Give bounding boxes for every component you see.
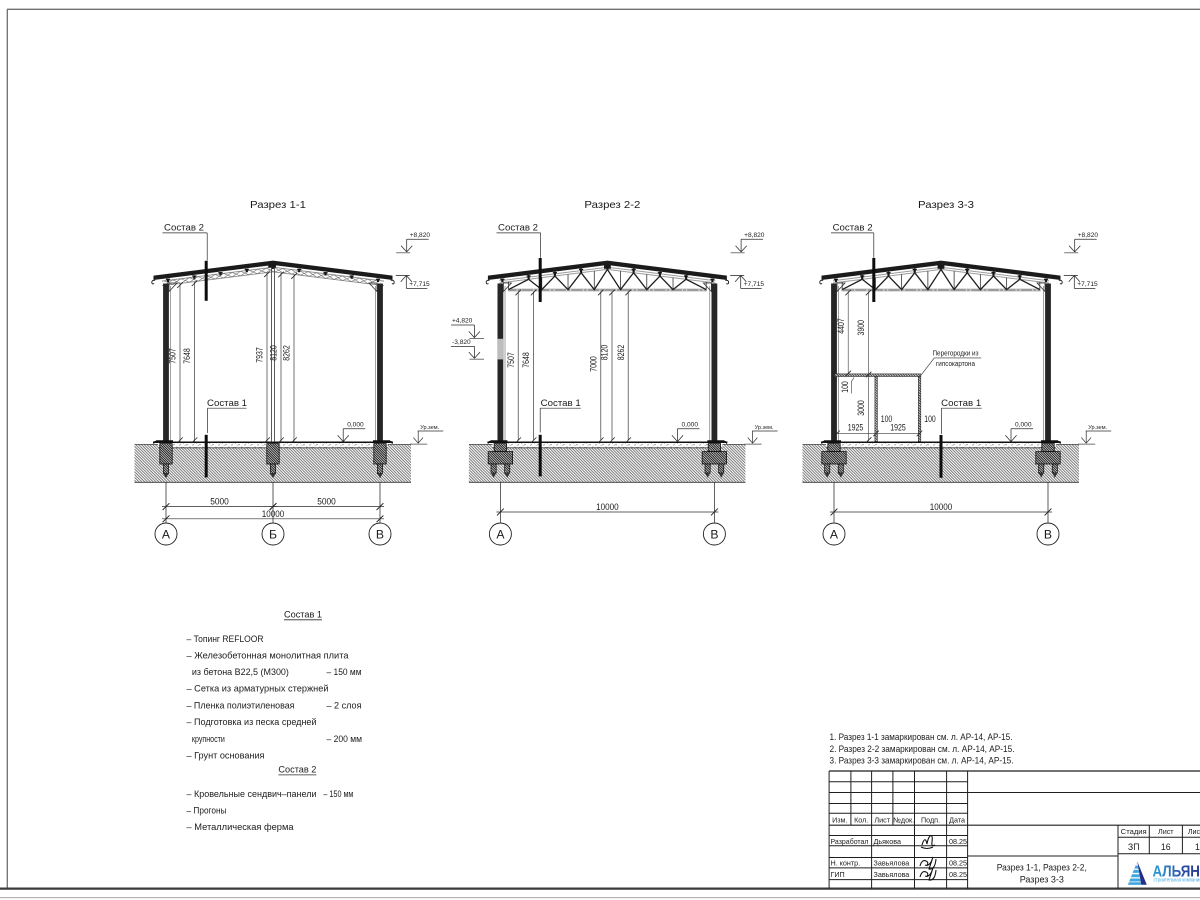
svg-text:– Сетка из арматурных стержней: – Сетка из арматурных стержней — [187, 684, 329, 695]
svg-text:Состав 1: Состав 1 — [941, 398, 981, 408]
svg-text:08.25: 08.25 — [949, 837, 967, 846]
svg-text:5000: 5000 — [210, 497, 229, 507]
svg-text:А: А — [162, 527, 171, 541]
svg-text:Разрез 2-2: Разрез 2-2 — [584, 200, 640, 211]
svg-text:Завьялова: Завьялова — [874, 859, 910, 868]
svg-text:1: 1 — [1195, 842, 1200, 852]
svg-text:16: 16 — [1161, 842, 1171, 852]
svg-text:10000: 10000 — [930, 502, 953, 512]
svg-text:– Кровельные сендвич–панели: – Кровельные сендвич–панели — [187, 789, 317, 800]
svg-text:+4,820: +4,820 — [452, 318, 473, 325]
svg-text:– 150 мм: – 150 мм — [323, 789, 353, 800]
svg-text:из бетона В22,5 (М300): из бетона В22,5 (М300) — [192, 667, 289, 678]
svg-text:8120: 8120 — [269, 345, 279, 361]
svg-text:Ур.зем.: Ур.зем. — [755, 425, 774, 431]
svg-text:Состав 1: Состав 1 — [207, 398, 247, 408]
svg-text:+7,715: +7,715 — [409, 281, 430, 288]
svg-text:100: 100 — [881, 414, 893, 424]
svg-text:Состав 2: Состав 2 — [833, 223, 873, 233]
svg-text:8262: 8262 — [282, 345, 292, 361]
svg-text:– 150 мм: – 150 мм — [327, 667, 362, 678]
svg-text:7648: 7648 — [521, 352, 531, 368]
svg-text:Стадия: Стадия — [1121, 827, 1147, 836]
svg-text:Подп.: Подп. — [921, 815, 940, 824]
svg-text:3000: 3000 — [856, 400, 866, 416]
svg-text:100: 100 — [840, 381, 850, 393]
svg-text:Ур.зем.: Ур.зем. — [1088, 425, 1107, 431]
svg-text:Состав 1: Состав 1 — [541, 398, 581, 408]
svg-text:Разрез 3-3: Разрез 3-3 — [1020, 874, 1064, 884]
svg-text:Состав 2: Состав 2 — [164, 223, 204, 233]
svg-text:В: В — [710, 527, 718, 541]
svg-text:3900: 3900 — [856, 320, 866, 336]
svg-text:Б: Б — [269, 527, 277, 541]
svg-text:Лист: Лист — [874, 815, 890, 824]
svg-text:0,000: 0,000 — [682, 422, 699, 429]
svg-text:1925: 1925 — [890, 423, 906, 433]
svg-text:10000: 10000 — [596, 502, 619, 512]
svg-text:Разрез 1-1: Разрез 1-1 — [250, 200, 306, 211]
svg-text:Лис: Лис — [1188, 827, 1200, 836]
svg-text:крупности: крупности — [192, 734, 225, 745]
svg-text:08.25: 08.25 — [949, 870, 967, 879]
svg-text:Состав 1: Состав 1 — [284, 609, 322, 620]
svg-text:0,000: 0,000 — [347, 422, 364, 429]
svg-text:8262: 8262 — [616, 345, 626, 361]
svg-text:– Подготовка из песка средней: – Подготовка из песка средней — [187, 717, 317, 728]
svg-text:+8,820: +8,820 — [744, 232, 765, 239]
svg-text:Разработал: Разработал — [831, 837, 869, 846]
svg-text:+7,715: +7,715 — [1077, 281, 1098, 288]
svg-text:Разрез 3-3: Разрез 3-3 — [918, 200, 974, 211]
svg-text:Кол.: Кол. — [854, 815, 868, 824]
svg-text:Завьялова: Завьялова — [874, 870, 910, 879]
svg-text:2. Разрез 2-2 замаркирован см.: 2. Разрез 2-2 замаркирован см. л. АР-14,… — [830, 744, 1015, 754]
svg-text:08.25: 08.25 — [949, 859, 967, 868]
svg-text:7648: 7648 — [182, 348, 192, 364]
svg-text:Перегородки из: Перегородки из — [933, 349, 980, 358]
svg-text:7937: 7937 — [255, 347, 265, 363]
svg-text:1925: 1925 — [848, 423, 864, 433]
svg-text:Изм.: Изм. — [832, 815, 847, 824]
svg-text:Состав 2: Состав 2 — [498, 223, 538, 233]
svg-text:– Прогоны: – Прогоны — [187, 805, 227, 816]
svg-text:Дьякова: Дьякова — [874, 837, 901, 846]
svg-text:А: А — [496, 527, 505, 541]
svg-text:– Пленка полиэтиленовая: – Пленка полиэтиленовая — [187, 700, 295, 711]
svg-text:Н. контр.: Н. контр. — [831, 859, 861, 868]
svg-text:ЗП: ЗП — [1128, 842, 1140, 852]
svg-text:0,000: 0,000 — [1015, 422, 1032, 429]
svg-text:В: В — [376, 527, 384, 541]
svg-text:-3,820: -3,820 — [452, 339, 471, 346]
svg-text:100: 100 — [924, 414, 936, 424]
svg-text:строительная компания: строительная компания — [1154, 877, 1200, 883]
svg-text:+8,820: +8,820 — [1078, 232, 1099, 239]
svg-text:В: В — [1044, 527, 1052, 541]
svg-text:+8,820: +8,820 — [410, 232, 431, 239]
svg-text:– Грунт основания: – Грунт основания — [187, 750, 265, 761]
svg-text:ГИП: ГИП — [831, 870, 845, 879]
svg-text:7000: 7000 — [588, 356, 598, 372]
svg-text:гипсокартона: гипсокартона — [936, 359, 976, 368]
svg-text:+7,715: +7,715 — [744, 281, 765, 288]
svg-text:– Топинг REFLOOR: – Топинг REFLOOR — [187, 634, 264, 645]
svg-text:Разрез 1-1, Разрез 2-2,: Разрез 1-1, Разрез 2-2, — [997, 862, 1087, 872]
svg-text:4407: 4407 — [836, 318, 846, 334]
svg-text:А: А — [830, 527, 839, 541]
svg-text:Ур.зем.: Ур.зем. — [420, 425, 439, 431]
svg-text:Состав 2: Состав 2 — [278, 764, 316, 775]
svg-text:– 200 мм: – 200 мм — [327, 734, 363, 745]
svg-text:Лист: Лист — [1158, 827, 1174, 836]
svg-text:– Железобетонная монолитная п: – Железобетонная монолитная плита — [187, 651, 350, 662]
svg-text:8120: 8120 — [600, 345, 610, 361]
svg-text:– Металлическая ферма: – Металлическая ферма — [187, 822, 295, 833]
svg-text:1. Разрез 1-1 замаркирован см.: 1. Разрез 1-1 замаркирован см. л. АР-14,… — [830, 732, 1013, 742]
svg-text:– 2 слоя: – 2 слоя — [327, 700, 362, 711]
svg-text:7507: 7507 — [168, 348, 178, 364]
svg-text:7507: 7507 — [506, 352, 516, 368]
svg-text:3. Разрез 3-3 замаркирован см.: 3. Разрез 3-3 замаркирован см. л. АР-14,… — [830, 755, 1014, 765]
svg-text:№док.: №док. — [893, 815, 914, 824]
svg-text:Дата: Дата — [949, 815, 965, 824]
svg-text:5000: 5000 — [317, 497, 336, 507]
